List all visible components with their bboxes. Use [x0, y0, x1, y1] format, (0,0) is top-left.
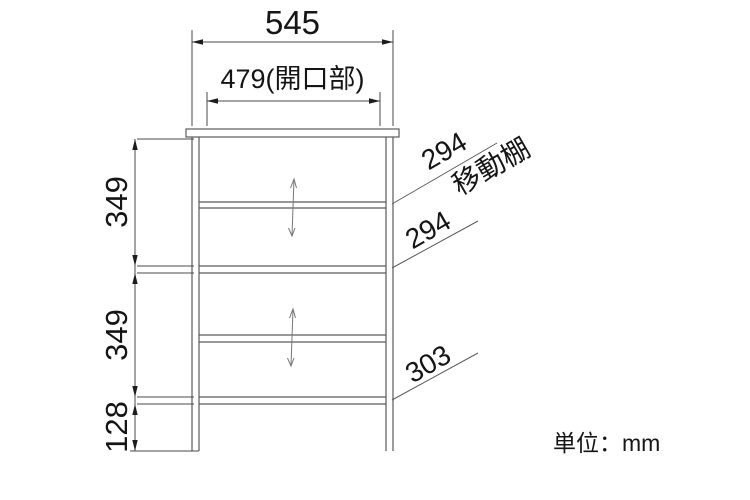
base-height-label: 128 [102, 392, 132, 462]
dimension-lines [135, 42, 393, 451]
dimension-drawing: 545 479(開口部) 349 349 128 294 移動棚 294 303… [0, 0, 750, 500]
opening-width-label: 479(開口部) [176, 64, 409, 94]
upper-section-height-label: 349 [102, 167, 132, 237]
unit-note: 単位：mm [553, 430, 660, 456]
lower-section-height-label: 349 [102, 300, 132, 370]
overall-width-label: 545 [192, 6, 393, 40]
cabinet-outline [186, 129, 399, 451]
adjust-arrow-up-down-2 [288, 309, 296, 366]
right-post [386, 137, 393, 451]
shelf-movable-1 [199, 202, 386, 208]
shelf-fixed-middle [199, 266, 386, 273]
top-panel [186, 129, 399, 137]
shelf-bottom [199, 397, 386, 404]
